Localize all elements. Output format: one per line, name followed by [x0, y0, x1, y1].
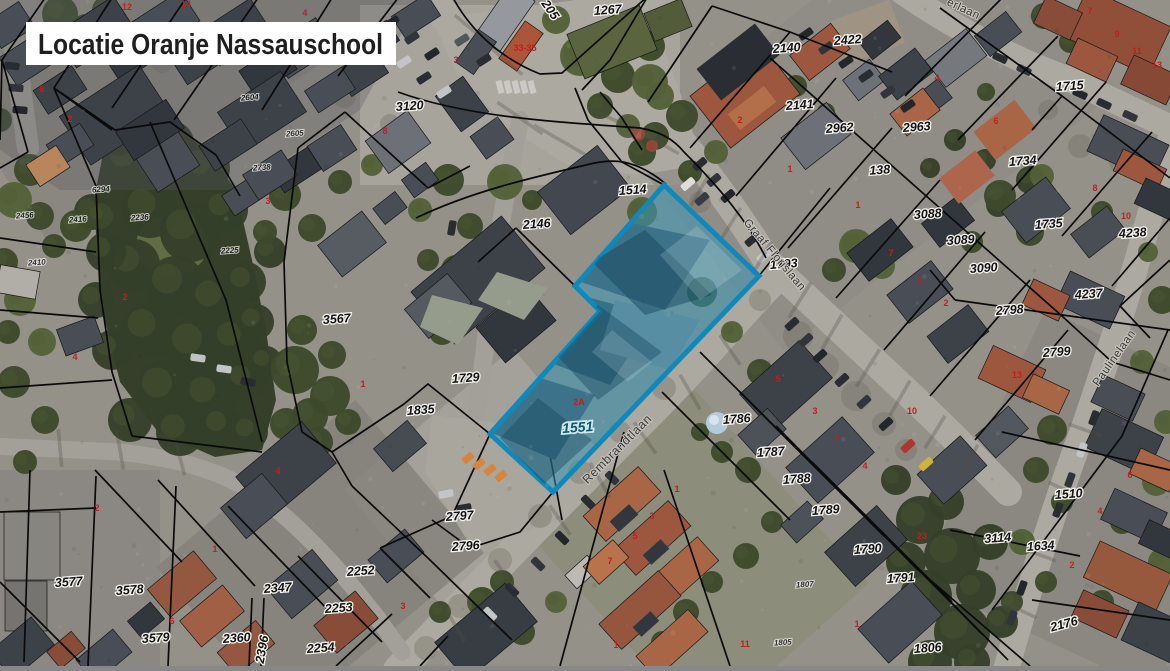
svg-text:5: 5: [632, 531, 637, 541]
svg-text:2253: 2253: [323, 600, 353, 616]
svg-text:3088: 3088: [913, 206, 942, 222]
svg-text:1: 1: [212, 544, 217, 554]
svg-text:3: 3: [649, 511, 654, 521]
svg-text:2798: 2798: [994, 302, 1024, 318]
svg-text:4: 4: [934, 73, 939, 83]
svg-text:3578: 3578: [115, 582, 144, 598]
svg-text:138: 138: [869, 162, 891, 177]
svg-text:10: 10: [907, 406, 917, 416]
svg-text:5: 5: [775, 374, 780, 384]
svg-text:1789: 1789: [811, 502, 840, 518]
svg-text:23: 23: [917, 531, 927, 541]
svg-text:1790: 1790: [853, 541, 882, 557]
svg-text:2347: 2347: [262, 580, 293, 596]
svg-text:1634: 1634: [1026, 538, 1055, 554]
svg-text:3: 3: [265, 196, 270, 206]
svg-text:1: 1: [674, 484, 679, 494]
svg-text:Locatie Oranje Nassauschool: Locatie Oranje Nassauschool: [38, 29, 383, 61]
svg-text:6: 6: [993, 116, 998, 126]
svg-text:1: 1: [855, 200, 860, 210]
svg-text:2410: 2410: [27, 257, 47, 267]
svg-text:2254: 2254: [305, 640, 335, 656]
svg-text:3089: 3089: [946, 232, 975, 248]
svg-text:6: 6: [39, 84, 44, 94]
svg-text:2141: 2141: [784, 97, 814, 113]
svg-text:4238: 4238: [1117, 225, 1147, 241]
svg-text:2422: 2422: [832, 32, 862, 48]
svg-text:1786: 1786: [722, 411, 752, 427]
svg-text:6: 6: [1127, 470, 1132, 480]
svg-text:1715: 1715: [1055, 78, 1085, 94]
svg-text:2146: 2146: [521, 216, 552, 232]
svg-text:2: 2: [122, 292, 127, 302]
svg-text:1: 1: [613, 640, 618, 650]
svg-text:4237: 4237: [1073, 286, 1104, 302]
svg-text:7: 7: [888, 248, 893, 258]
svg-text:1: 1: [854, 619, 859, 629]
svg-text:1735: 1735: [1034, 216, 1064, 232]
svg-text:8: 8: [1092, 183, 1097, 193]
svg-text:3: 3: [400, 601, 405, 611]
svg-text:2963: 2963: [901, 119, 931, 135]
svg-text:3: 3: [917, 275, 922, 285]
svg-text:3114: 3114: [984, 530, 1012, 546]
svg-text:2797: 2797: [444, 508, 475, 524]
svg-text:2: 2: [94, 503, 99, 513]
svg-text:1806: 1806: [913, 640, 943, 656]
svg-text:2360: 2360: [221, 630, 251, 646]
svg-text:1807: 1807: [796, 579, 815, 589]
svg-text:2605: 2605: [285, 128, 305, 138]
svg-text:1729: 1729: [451, 370, 480, 386]
svg-text:1: 1: [787, 164, 792, 174]
svg-text:1267: 1267: [593, 2, 623, 18]
svg-text:8: 8: [382, 126, 387, 136]
svg-text:2: 2: [834, 434, 839, 444]
svg-text:3577: 3577: [54, 574, 84, 590]
svg-text:7: 7: [607, 556, 612, 566]
svg-text:11: 11: [1132, 46, 1142, 56]
svg-text:1791: 1791: [886, 570, 915, 586]
svg-text:6: 6: [169, 616, 174, 626]
svg-text:13: 13: [1012, 370, 1022, 380]
svg-text:10: 10: [1121, 211, 1131, 221]
svg-text:2: 2: [1069, 560, 1074, 570]
svg-text:1787: 1787: [756, 444, 786, 460]
svg-text:12: 12: [122, 2, 132, 12]
svg-text:4: 4: [302, 8, 307, 18]
svg-text:1551: 1551: [562, 418, 594, 436]
svg-text:1734: 1734: [1008, 153, 1037, 169]
svg-text:2799: 2799: [1041, 344, 1071, 360]
svg-text:1510: 1510: [1054, 486, 1083, 502]
svg-text:2962: 2962: [824, 120, 854, 136]
svg-text:1: 1: [360, 379, 365, 389]
svg-text:2: 2: [67, 114, 72, 124]
svg-text:3579: 3579: [141, 630, 170, 646]
svg-text:6294: 6294: [92, 184, 111, 194]
svg-text:2796: 2796: [450, 538, 481, 554]
svg-text:2416: 2416: [68, 214, 88, 224]
svg-text:2225: 2225: [220, 245, 240, 255]
svg-text:4: 4: [275, 466, 280, 476]
svg-text:3: 3: [453, 55, 458, 65]
svg-text:4: 4: [862, 461, 867, 471]
svg-text:2140: 2140: [771, 40, 801, 56]
svg-text:2: 2: [943, 298, 948, 308]
svg-text:33-35: 33-35: [513, 43, 536, 53]
svg-text:1835: 1835: [406, 402, 436, 418]
svg-text:2: 2: [737, 115, 742, 125]
svg-text:9: 9: [1114, 29, 1119, 39]
svg-text:2456: 2456: [15, 210, 35, 220]
svg-text:2A: 2A: [573, 397, 585, 407]
svg-text:1514: 1514: [618, 182, 647, 198]
svg-text:14: 14: [181, 0, 191, 9]
svg-text:2604: 2604: [240, 92, 260, 102]
svg-text:3120: 3120: [395, 98, 424, 114]
svg-text:2738: 2738: [252, 162, 272, 172]
svg-text:2236: 2236: [130, 212, 150, 222]
svg-text:13: 13: [1152, 60, 1162, 70]
svg-text:1788: 1788: [782, 471, 811, 487]
svg-text:4: 4: [72, 352, 77, 362]
svg-text:7: 7: [1087, 6, 1092, 16]
svg-text:4: 4: [1097, 506, 1102, 516]
svg-text:3: 3: [812, 406, 817, 416]
svg-text:2252: 2252: [345, 563, 375, 579]
svg-text:3090: 3090: [969, 260, 998, 276]
svg-text:11: 11: [740, 639, 750, 649]
svg-text:3567: 3567: [322, 311, 352, 327]
svg-text:1805: 1805: [774, 637, 793, 647]
